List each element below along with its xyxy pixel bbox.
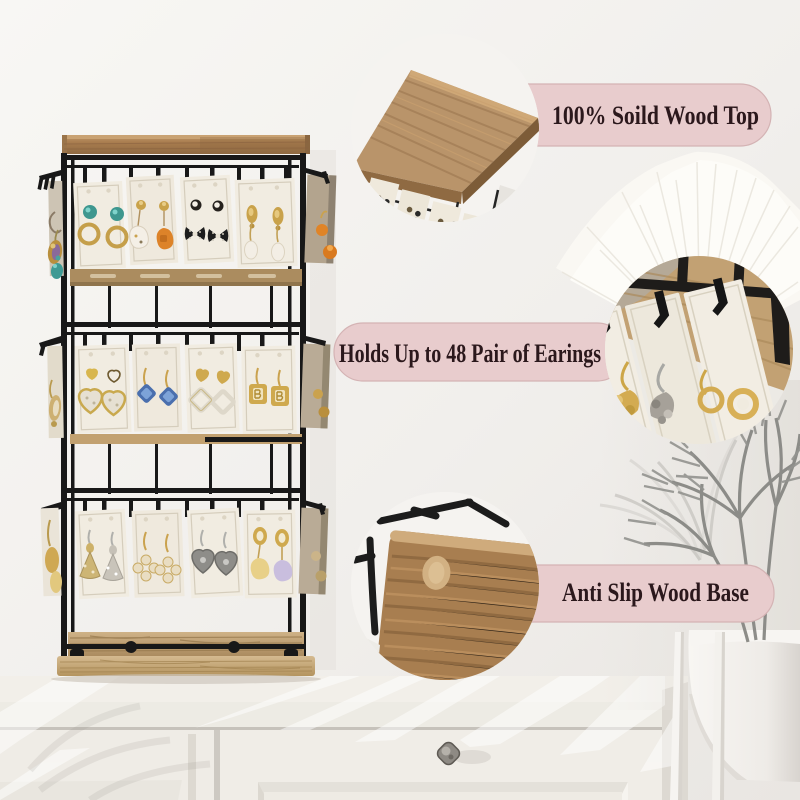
- svg-text:Holds Up to 48 Pair of Earin: Holds Up to 48 Pair of Earings: [339, 339, 601, 368]
- svg-text:100% Soild Wood Top: 100% Soild Wood Top: [552, 101, 759, 130]
- svg-text:Anti Slip Wood Base: Anti Slip Wood Base: [562, 578, 749, 607]
